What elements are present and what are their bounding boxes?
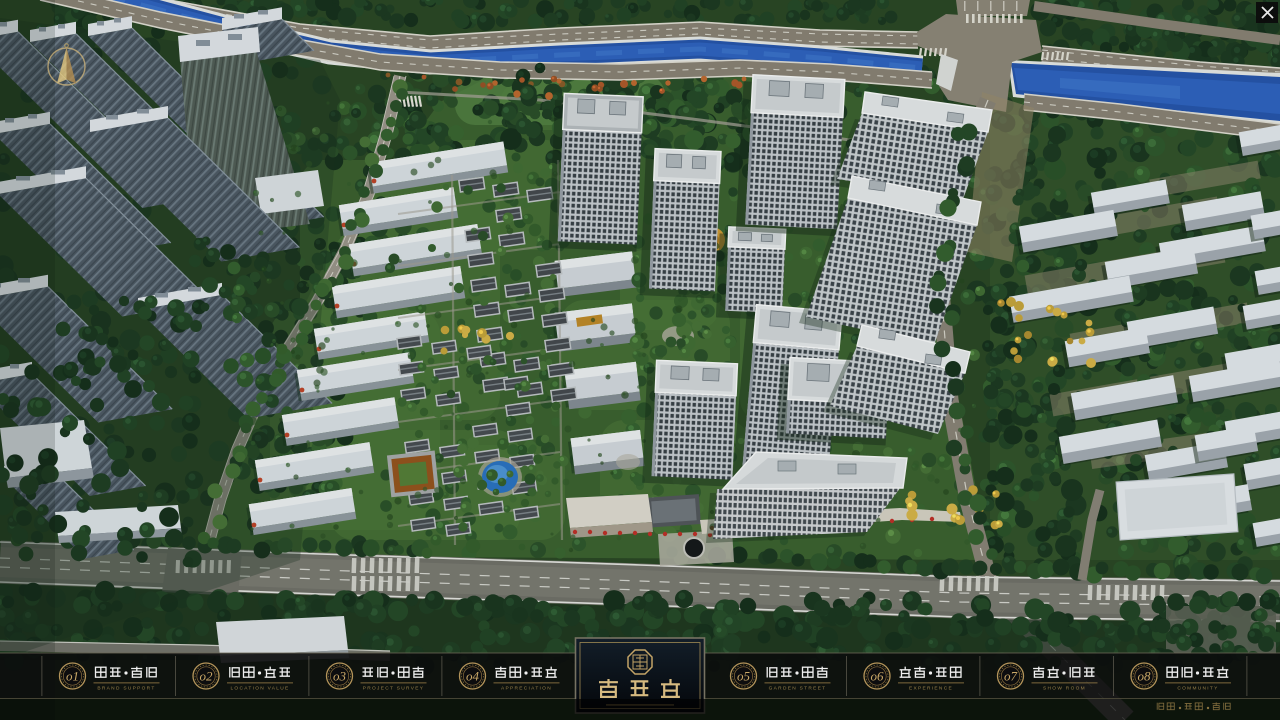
svg-text:o4: o4 <box>466 669 480 684</box>
svg-text:LOCATION VALUE: LOCATION VALUE <box>230 686 289 692</box>
svg-text:EXPERIENCE: EXPERIENCE <box>909 686 953 692</box>
svg-text:o2: o2 <box>200 669 214 684</box>
svg-text:o8: o8 <box>1138 669 1152 684</box>
svg-text:BRAND SUPPORT: BRAND SUPPORT <box>97 686 155 692</box>
svg-text:COMMUNITY: COMMUNITY <box>1177 686 1218 692</box>
svg-text:APPRECIATION: APPRECIATION <box>501 686 552 692</box>
svg-text:o6: o6 <box>871 669 885 684</box>
svg-text:PROJECT SURVEY: PROJECT SURVEY <box>363 686 424 692</box>
svg-text:o5: o5 <box>737 669 751 684</box>
svg-text:o7: o7 <box>1004 669 1018 684</box>
svg-text:o3: o3 <box>333 669 347 684</box>
svg-text:o1: o1 <box>66 669 79 684</box>
svg-text:GARDEN STREET: GARDEN STREET <box>769 686 827 692</box>
svg-text:SHOW ROOM: SHOW ROOM <box>1043 686 1086 692</box>
